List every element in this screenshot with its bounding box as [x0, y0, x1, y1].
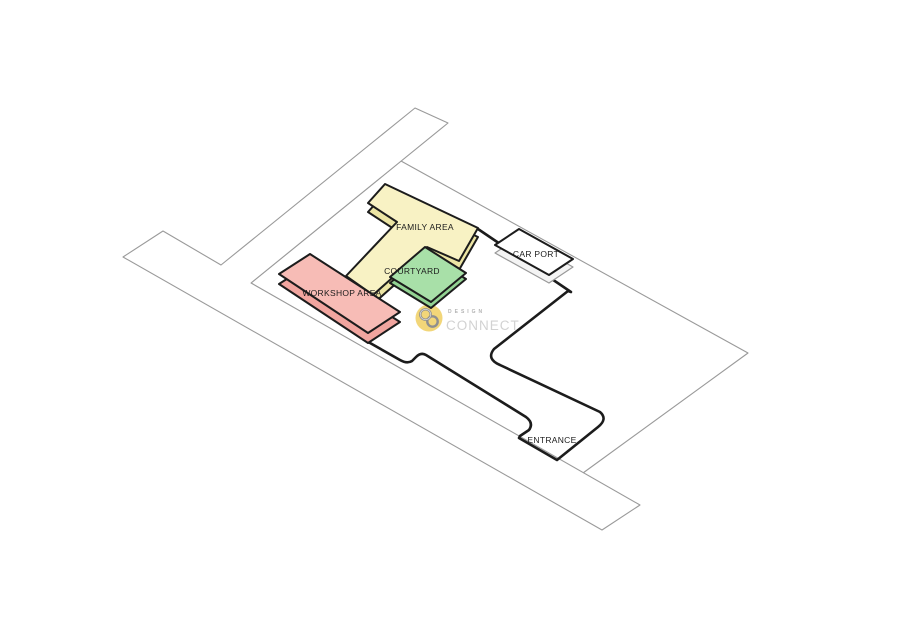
family-area-label: FAMILY AREA — [396, 222, 454, 232]
carport-label: CAR PORT — [513, 249, 559, 259]
entrance-label: ENTRANCE — [527, 435, 576, 445]
watermark-brand-bottom: CONNECT — [446, 318, 520, 333]
watermark-brand-top: DESIGN — [448, 309, 485, 315]
courtyard-label: COURTYARD — [384, 266, 440, 276]
site-plan-drawing: DESIGN CONNECT FAMILY AREA COURTYARD WOR… — [0, 0, 900, 637]
site-plan-canvas: DESIGN CONNECT FAMILY AREA COURTYARD WOR… — [0, 0, 900, 637]
workshop-area-label: WORKSHOP AREA — [302, 288, 381, 298]
